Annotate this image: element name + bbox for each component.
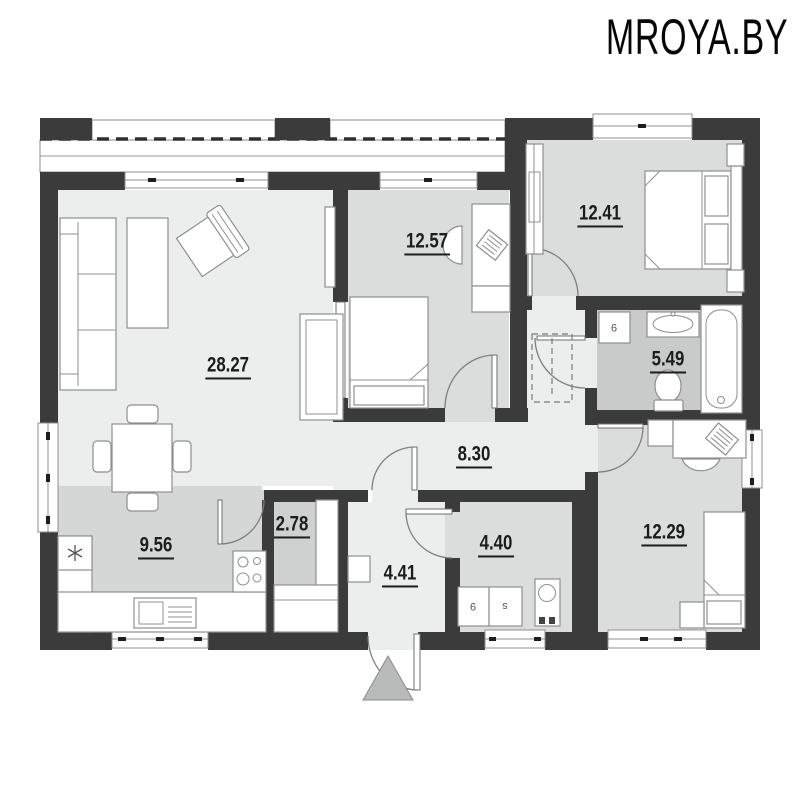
wall-segment bbox=[526, 296, 532, 310]
room-area-label-entry-hall: 4.41 bbox=[382, 562, 418, 587]
wall-segment bbox=[345, 408, 445, 422]
room-area-label-kitchen: 9.56 bbox=[138, 534, 174, 559]
washbasin bbox=[647, 312, 699, 337]
room-area-label-bathroom: 5.49 bbox=[650, 348, 686, 373]
desk-cabinet bbox=[472, 286, 510, 312]
room-area-label-hallway: 8.30 bbox=[456, 443, 492, 468]
cabinet bbox=[648, 420, 673, 446]
sofa bbox=[60, 218, 116, 390]
window-bedroom-top bbox=[380, 172, 477, 188]
doorway bbox=[585, 427, 598, 472]
washing-machine: 9 bbox=[599, 312, 630, 343]
window-living-left bbox=[38, 423, 58, 532]
wall-segment bbox=[418, 632, 485, 650]
pillow bbox=[707, 601, 741, 624]
wall-segment bbox=[585, 296, 597, 338]
doorway bbox=[220, 490, 264, 502]
washer: 9 bbox=[458, 587, 489, 626]
vestibule-floor bbox=[526, 296, 585, 422]
double-bed bbox=[645, 171, 731, 269]
doorway bbox=[445, 512, 460, 558]
doorway bbox=[530, 296, 576, 310]
washer-mark: 9 bbox=[470, 600, 476, 612]
wall-segment bbox=[40, 172, 58, 423]
wall-segment bbox=[268, 172, 380, 190]
entry-cabinet bbox=[348, 556, 370, 582]
bathtub bbox=[701, 305, 742, 413]
window-bedroom-bottom bbox=[608, 630, 706, 648]
tv-stand bbox=[300, 314, 343, 420]
tv bbox=[325, 207, 335, 287]
room-area-label-bedroom-right: 12.41 bbox=[577, 202, 622, 227]
pergola-band bbox=[92, 120, 275, 140]
headboard bbox=[731, 166, 742, 274]
room-area-label-bedroom-bottom: 12.29 bbox=[641, 521, 686, 546]
doorway bbox=[372, 490, 418, 502]
dryer-mark: s bbox=[502, 600, 508, 612]
wall-segment bbox=[505, 140, 527, 190]
room-area-label-living-room: 28.27 bbox=[205, 354, 250, 379]
boiler-connection bbox=[539, 617, 545, 624]
washer-mark: 9 bbox=[611, 321, 617, 333]
room-area-label-utility-room: 4.40 bbox=[478, 532, 514, 557]
wall-segment bbox=[742, 118, 760, 430]
nightstand bbox=[727, 270, 744, 292]
pergola-band bbox=[330, 120, 505, 140]
pantry-shelf bbox=[274, 585, 338, 632]
dining-chair bbox=[127, 493, 158, 511]
room-area-label-bedroom-top: 12.57 bbox=[404, 230, 449, 255]
floorplan-page: MROYA.BY bbox=[0, 0, 800, 800]
wall-segment bbox=[572, 500, 598, 632]
nightstand bbox=[727, 144, 744, 166]
single-bed bbox=[704, 512, 745, 628]
boiler-connection bbox=[549, 617, 555, 624]
doorway bbox=[445, 408, 495, 422]
window-bedroom-right bbox=[593, 114, 692, 138]
wall-segment bbox=[545, 632, 608, 650]
wall-segment bbox=[40, 632, 112, 650]
room-area-label-pantry: 2.78 bbox=[274, 513, 310, 538]
wall-segment bbox=[585, 388, 597, 412]
dryer: s bbox=[489, 587, 522, 626]
dining-table bbox=[112, 424, 172, 492]
coffee-table bbox=[127, 218, 168, 328]
window-living-top bbox=[125, 172, 268, 188]
doorway bbox=[368, 632, 418, 650]
dining-chair bbox=[93, 441, 111, 472]
toilet bbox=[654, 370, 683, 411]
wall-segment bbox=[706, 632, 760, 650]
doorway bbox=[585, 338, 597, 388]
wall-segment bbox=[208, 632, 368, 650]
window-kitchen-bottom bbox=[112, 630, 208, 648]
dining-chair bbox=[173, 441, 191, 472]
dining-chair bbox=[127, 405, 158, 423]
window-utility-bottom bbox=[485, 630, 545, 648]
wall-segment bbox=[338, 500, 348, 632]
pillow bbox=[354, 386, 424, 405]
sink bbox=[134, 598, 196, 628]
boiler bbox=[535, 579, 560, 626]
single-bed bbox=[350, 297, 428, 408]
entrance-triangle-marker bbox=[363, 656, 413, 700]
pergola-grid bbox=[40, 120, 505, 172]
stove bbox=[233, 551, 266, 592]
wall-segment bbox=[275, 118, 330, 140]
wall-segment bbox=[495, 408, 528, 422]
pillow bbox=[705, 224, 728, 264]
pantry-shelf bbox=[316, 500, 338, 585]
wall-segment bbox=[40, 118, 92, 140]
wardrobe bbox=[526, 144, 543, 254]
bedside-table bbox=[680, 602, 704, 628]
floorplan-drawing: 9 9 bbox=[0, 0, 800, 800]
pillow bbox=[705, 176, 728, 216]
wall-segment bbox=[505, 118, 593, 140]
wall-segment bbox=[510, 190, 527, 408]
